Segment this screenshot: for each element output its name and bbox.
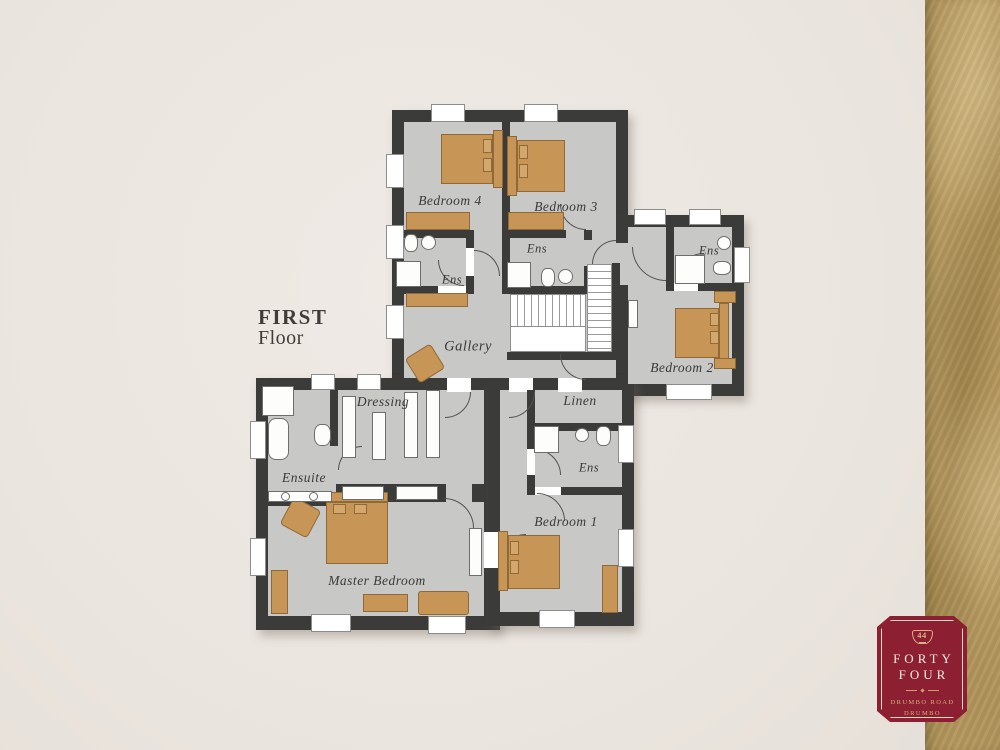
bed-headboard xyxy=(498,531,508,591)
radiator xyxy=(469,528,482,576)
pillow xyxy=(510,541,519,555)
wardrobe xyxy=(406,293,468,307)
window xyxy=(524,104,558,122)
room-label-gallery: Gallery xyxy=(444,339,492,356)
pillow xyxy=(710,313,719,326)
wardrobe-rail xyxy=(426,390,440,458)
shower xyxy=(534,426,559,453)
badge-name-line2: FOUR xyxy=(889,667,955,683)
badge-address-line1: DRUMBO ROAD xyxy=(890,697,955,708)
window xyxy=(618,425,634,463)
window xyxy=(734,247,750,283)
wall-ens3-right-top xyxy=(584,230,592,240)
divider-line xyxy=(906,690,917,691)
room-label-ensuite: Ensuite xyxy=(282,470,326,486)
toilet xyxy=(314,424,331,446)
divider-diamond-icon xyxy=(920,688,924,692)
sofa xyxy=(418,591,469,615)
wall-ensuite-dressing xyxy=(330,390,338,446)
built-in-wardrobe xyxy=(396,486,438,500)
room-label-ens-bedroom3: Ens xyxy=(527,242,547,257)
door-gap-dressing xyxy=(447,378,471,392)
window xyxy=(250,421,266,459)
window xyxy=(386,225,404,259)
shower xyxy=(675,255,705,284)
bench xyxy=(363,594,408,612)
sink xyxy=(309,492,318,501)
room-label-bedroom3: Bedroom 3 xyxy=(534,199,598,215)
toilet xyxy=(541,268,555,287)
sink xyxy=(575,428,589,442)
window xyxy=(634,209,666,225)
badge-divider xyxy=(906,689,939,692)
badge-name-line1: FORTY xyxy=(889,651,955,667)
door-gap-bedroom4 xyxy=(466,248,474,276)
window xyxy=(689,209,721,225)
wall-stairwell-right xyxy=(612,263,620,360)
room-label-ens-bedroom2: Ens xyxy=(699,244,719,259)
badge-address-line2: DRUMBO xyxy=(890,708,955,719)
sink xyxy=(281,492,290,501)
divider-line xyxy=(928,690,939,691)
built-in-wardrobe xyxy=(342,486,384,500)
pillow xyxy=(710,331,719,344)
plan-title: FIRST Floor xyxy=(258,306,327,349)
shield-crest-icon: 44 xyxy=(912,630,933,644)
pillow xyxy=(519,145,528,159)
door-gap-linen xyxy=(558,378,582,392)
badge-address: DRUMBO ROAD DRUMBO xyxy=(890,697,955,719)
shower xyxy=(396,261,421,287)
plan-title-line2: Floor xyxy=(258,328,327,349)
room-label-ens-bedroom4: Ens xyxy=(442,273,462,288)
room-label-linen: Linen xyxy=(563,393,596,409)
pillow xyxy=(483,158,492,172)
room-label-bedroom1: Bedroom 1 xyxy=(534,514,598,530)
bathtub xyxy=(268,418,289,460)
wall-ens2-left xyxy=(666,227,674,291)
sink xyxy=(558,269,573,284)
chest xyxy=(271,570,288,614)
toilet xyxy=(404,234,418,252)
window xyxy=(386,154,404,188)
pillow xyxy=(333,504,346,514)
stairs-landing xyxy=(510,326,586,352)
door-gap-ens2 xyxy=(674,283,698,291)
dresser xyxy=(602,565,618,613)
window xyxy=(311,614,351,632)
shower xyxy=(507,262,531,288)
wardrobe xyxy=(714,291,736,303)
room-label-master-bedroom: Master Bedroom xyxy=(328,573,426,589)
window xyxy=(357,374,381,390)
room-label-bedroom2: Bedroom 2 xyxy=(650,360,714,376)
stairs-right-flight xyxy=(587,264,612,352)
bed-headboard xyxy=(719,303,729,361)
window xyxy=(386,305,404,339)
toilet xyxy=(713,261,731,275)
room-label-dressing: Dressing xyxy=(357,394,409,410)
badge-border: 44 FORTY FOUR DRUMBO ROAD DRUMBO xyxy=(881,620,963,718)
sink xyxy=(421,235,436,250)
window xyxy=(311,374,335,390)
bed-headboard xyxy=(507,136,517,196)
window xyxy=(539,610,575,628)
bed-headboard xyxy=(493,130,503,188)
badge-name: FORTY FOUR xyxy=(889,651,955,684)
window xyxy=(618,529,634,567)
pillow xyxy=(483,139,492,153)
wardrobe xyxy=(406,212,470,230)
wall-under-wardrobe3 xyxy=(510,230,566,238)
toilet xyxy=(596,426,611,446)
development-badge: 44 FORTY FOUR DRUMBO ROAD DRUMBO xyxy=(877,616,967,722)
room-label-ens-bedroom1: Ens xyxy=(579,461,599,476)
window xyxy=(431,104,465,122)
window xyxy=(428,616,466,634)
window xyxy=(250,538,266,576)
vanity-counter xyxy=(268,491,332,502)
badge-number: 44 xyxy=(917,631,927,640)
stairs-upper-flight xyxy=(510,294,586,327)
wardrobe-rail xyxy=(342,396,356,458)
window xyxy=(666,384,712,400)
room-label-bedroom4: Bedroom 4 xyxy=(418,193,482,209)
wardrobe xyxy=(714,358,736,369)
pillow xyxy=(519,164,528,178)
pillow xyxy=(510,560,519,574)
shield-dash xyxy=(919,642,926,643)
radiator xyxy=(628,300,638,328)
wardrobe-rail xyxy=(372,412,386,460)
shower xyxy=(262,386,294,416)
brochure-page: FIRST Floor xyxy=(0,0,1000,750)
wall-master-band-nub xyxy=(472,484,484,502)
pillow xyxy=(354,504,367,514)
plan-title-line1: FIRST xyxy=(258,306,327,328)
